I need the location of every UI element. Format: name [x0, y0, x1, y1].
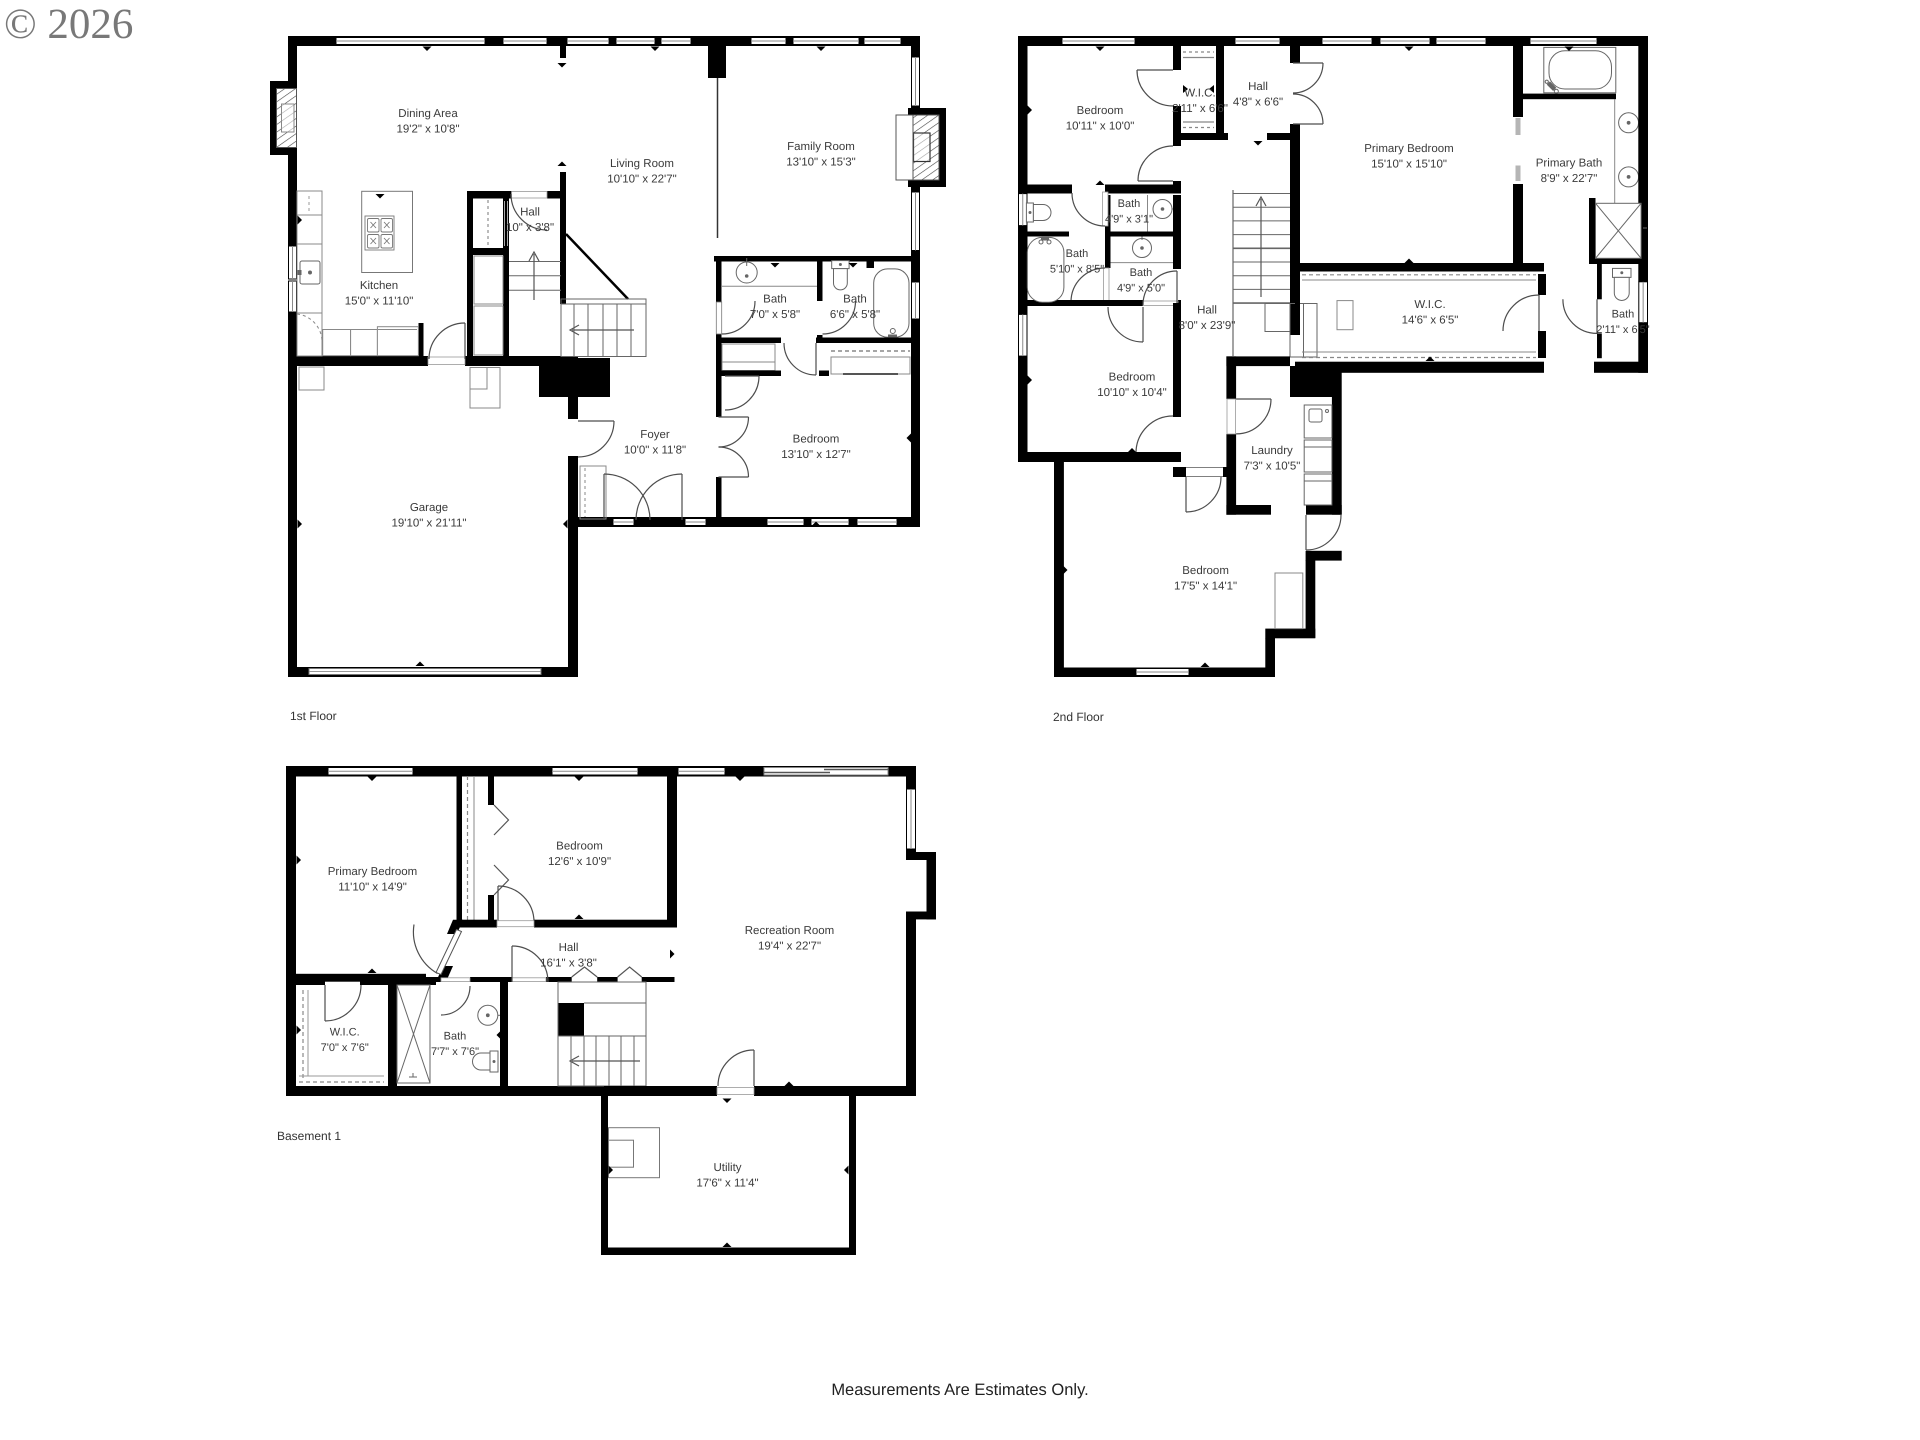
svg-text:W.I.C.: W.I.C. [330, 1027, 360, 1039]
svg-text:Foyer: Foyer [640, 429, 670, 441]
svg-text:7'0" x 5'8": 7'0" x 5'8" [750, 309, 800, 321]
svg-text:6'6" x 5'8": 6'6" x 5'8" [830, 309, 880, 321]
svg-text:7'0" x 7'6": 7'0" x 7'6" [321, 1042, 369, 1054]
svg-text:Basement 1: Basement 1 [277, 1129, 341, 1143]
svg-text:10'0" x 11'8": 10'0" x 11'8" [624, 445, 686, 457]
svg-text:2'11" x 6'6": 2'11" x 6'6" [1172, 103, 1228, 115]
svg-text:8'0" x 23'9": 8'0" x 23'9" [1179, 320, 1236, 332]
svg-text:Hall: Hall [1248, 81, 1268, 93]
svg-text:Bath: Bath [1118, 198, 1141, 210]
svg-text:13'10" x 15'3": 13'10" x 15'3" [786, 157, 855, 169]
svg-text:7'3" x 10'5": 7'3" x 10'5" [1244, 461, 1301, 473]
svg-text:Garage: Garage [410, 502, 448, 514]
svg-text:11'10" x 14'9": 11'10" x 14'9" [338, 882, 407, 894]
svg-text:Bath: Bath [1066, 248, 1089, 260]
svg-text:Dining Area: Dining Area [398, 108, 458, 120]
svg-text:W.I.C.: W.I.C. [1414, 299, 1445, 311]
svg-text:14'6" x 6'5": 14'6" x 6'5" [1402, 315, 1459, 327]
svg-text:Bedroom: Bedroom [1077, 105, 1124, 117]
svg-text:Bath: Bath [1612, 309, 1635, 321]
svg-text:Living Room: Living Room [610, 158, 674, 170]
svg-text:15'10" x 15'10": 15'10" x 15'10" [1371, 159, 1447, 171]
svg-text:Primary Bath: Primary Bath [1536, 158, 1602, 170]
svg-text:7'7" x 7'6": 7'7" x 7'6" [431, 1046, 479, 1058]
svg-text:Bath: Bath [763, 294, 787, 306]
svg-text:13'10" x 12'7": 13'10" x 12'7" [781, 449, 850, 461]
svg-text:Laundry: Laundry [1251, 445, 1293, 457]
svg-text:19'4" x 22'7": 19'4" x 22'7" [758, 941, 821, 953]
svg-text:Measurements Are Estimates Onl: Measurements Are Estimates Only. [831, 1381, 1088, 1399]
svg-text:10'11" x 10'0": 10'11" x 10'0" [1066, 121, 1135, 133]
svg-text:19'2" x 10'8": 19'2" x 10'8" [396, 124, 459, 136]
svg-text:Kitchen: Kitchen [360, 280, 398, 292]
svg-text:10'10" x 10'4": 10'10" x 10'4" [1097, 387, 1166, 399]
svg-text:Bath: Bath [444, 1031, 467, 1043]
svg-text:15'0" x 11'10": 15'0" x 11'10" [345, 296, 414, 308]
svg-text:2nd Floor: 2nd Floor [1053, 710, 1104, 724]
svg-text:Bath: Bath [843, 294, 867, 306]
svg-text:Utility: Utility [713, 1162, 741, 1174]
svg-text:W.I.C.: W.I.C. [1184, 88, 1215, 100]
svg-text:Primary Bedroom: Primary Bedroom [328, 866, 417, 878]
svg-text:Bedroom: Bedroom [1109, 372, 1156, 384]
svg-text:19'10" x 21'11": 19'10" x 21'11" [391, 518, 466, 530]
svg-text:4'8" x 6'6": 4'8" x 6'6" [1233, 97, 1283, 109]
svg-text:10" x 3'8": 10" x 3'8" [506, 222, 554, 234]
svg-text:17'5" x 14'1": 17'5" x 14'1" [1174, 581, 1237, 593]
svg-text:4'9" x 3'1": 4'9" x 3'1" [1105, 214, 1153, 226]
svg-text:5'10" x 8'5": 5'10" x 8'5" [1050, 264, 1104, 276]
svg-text:2'11" x 6'5": 2'11" x 6'5" [1596, 324, 1649, 336]
svg-text:Recreation Room: Recreation Room [745, 925, 834, 937]
svg-text:Hall: Hall [520, 207, 540, 219]
svg-text:Hall: Hall [559, 942, 579, 954]
svg-text:Hall: Hall [1197, 305, 1217, 317]
svg-text:17'6" x 11'4": 17'6" x 11'4" [696, 1178, 758, 1190]
svg-text:10'10" x 22'7": 10'10" x 22'7" [607, 174, 676, 186]
svg-text:Bedroom: Bedroom [556, 841, 603, 853]
svg-text:Family Room: Family Room [787, 141, 855, 153]
svg-text:© 2026: © 2026 [4, 1, 133, 48]
svg-text:12'6" x 10'9": 12'6" x 10'9" [548, 856, 611, 868]
svg-text:Primary Bedroom: Primary Bedroom [1364, 143, 1453, 155]
svg-text:16'1" x 3'8": 16'1" x 3'8" [540, 958, 597, 970]
svg-text:Bedroom: Bedroom [1182, 565, 1229, 577]
svg-text:8'9" x 22'7": 8'9" x 22'7" [1541, 173, 1598, 185]
svg-text:1st Floor: 1st Floor [290, 709, 337, 723]
svg-text:Bath: Bath [1130, 267, 1153, 279]
svg-text:Bedroom: Bedroom [793, 434, 840, 446]
svg-text:4'9" x 5'0": 4'9" x 5'0" [1117, 283, 1165, 295]
